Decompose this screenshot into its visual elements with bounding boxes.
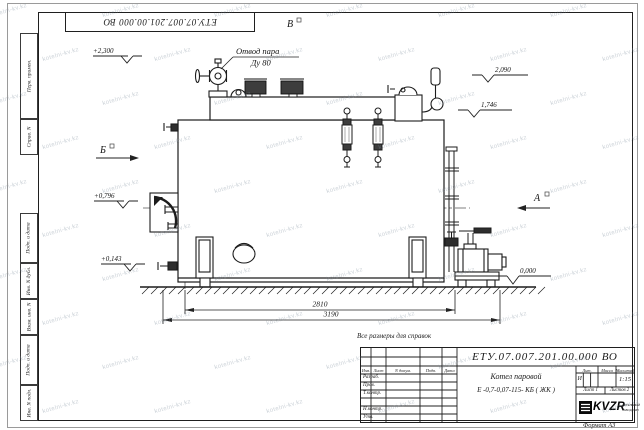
view-label-b: Б <box>99 145 106 156</box>
ground-line <box>140 287 545 294</box>
logo-caption-1: КОТЕЛЬНЫЙ <box>622 403 640 407</box>
col-podp: Подп. <box>426 368 437 373</box>
col-data: Дата <box>444 368 454 373</box>
mass-header: Масса <box>601 368 613 373</box>
steam-callout-line1: Отвод пара <box>236 46 279 56</box>
product-name-line1: Котел паровой <box>491 372 542 381</box>
sheets-total: Листов 2 <box>610 388 629 393</box>
sheet-number: Лист 1 <box>583 388 598 393</box>
view-label-v: В <box>287 19 293 30</box>
elevation-1746: 1,746 <box>481 101 497 109</box>
boiler-casing <box>178 97 444 282</box>
row-razrab: Разраб. <box>363 375 379 380</box>
product-name-line2: Е -0,7-0,07-115- КБ ( ЖК ) <box>477 386 555 394</box>
lit-value: И <box>578 376 582 382</box>
title-block: Изм. Лист N докум. Подп. Дата Разраб. Пр… <box>360 347 635 423</box>
lifting-lug <box>231 90 246 97</box>
elevation-2090: 2,090 <box>495 66 511 74</box>
elevation-0143: +0,143 <box>101 255 122 263</box>
drawing-sheet: ЕТУ.07.007.201.00.000 ВО Перв. примен. С… <box>0 0 644 430</box>
scale-value: 1:15 <box>619 376 631 383</box>
view-label-a: А <box>533 193 541 204</box>
kvzr-logo: KVZR КОТЕЛЬНЫЙ ЗАВОД РЭП <box>577 395 634 421</box>
row-prov: Пров. <box>363 383 375 388</box>
safety-valves <box>244 79 304 97</box>
logo-text: KVZR <box>593 401 625 413</box>
row-tkontr: Т.контр. <box>363 391 381 396</box>
front-door-and-fittings <box>150 123 178 270</box>
dimension-3190: 3190 <box>323 310 339 319</box>
format-note: Формат А3 <box>583 422 615 429</box>
dimension-lines <box>163 290 500 324</box>
boiler-logo-icon <box>579 401 593 415</box>
logo-caption-2: ЗАВОД РЭП <box>622 408 639 412</box>
elevation-0796: +0,796 <box>94 192 115 200</box>
feed-pump-unit <box>455 244 506 287</box>
row-nkontr: Н.контр. <box>363 407 382 412</box>
row-utv: Утв. <box>363 415 373 420</box>
dimension-2810: 2810 <box>313 300 328 309</box>
elevation-0000: 0,000 <box>520 267 536 275</box>
scale-header: Масштаб <box>616 368 634 373</box>
doc-number: ЕТУ.07.007.201.00.000 ВО <box>472 351 618 363</box>
col-docnum: N докум. <box>395 368 411 373</box>
steam-callout-line2: Ду 80 <box>250 58 272 68</box>
lit-header: Лит. <box>582 368 591 373</box>
control-box-and-sensor <box>388 68 443 121</box>
col-list: Лист <box>373 368 383 373</box>
elevation-2300: +2,300 <box>93 47 114 55</box>
steam-outlet-valve <box>196 59 228 97</box>
manhole <box>233 244 255 264</box>
reference-note: Все размеры для справок <box>357 332 431 340</box>
col-izm: Изм. <box>362 368 371 373</box>
